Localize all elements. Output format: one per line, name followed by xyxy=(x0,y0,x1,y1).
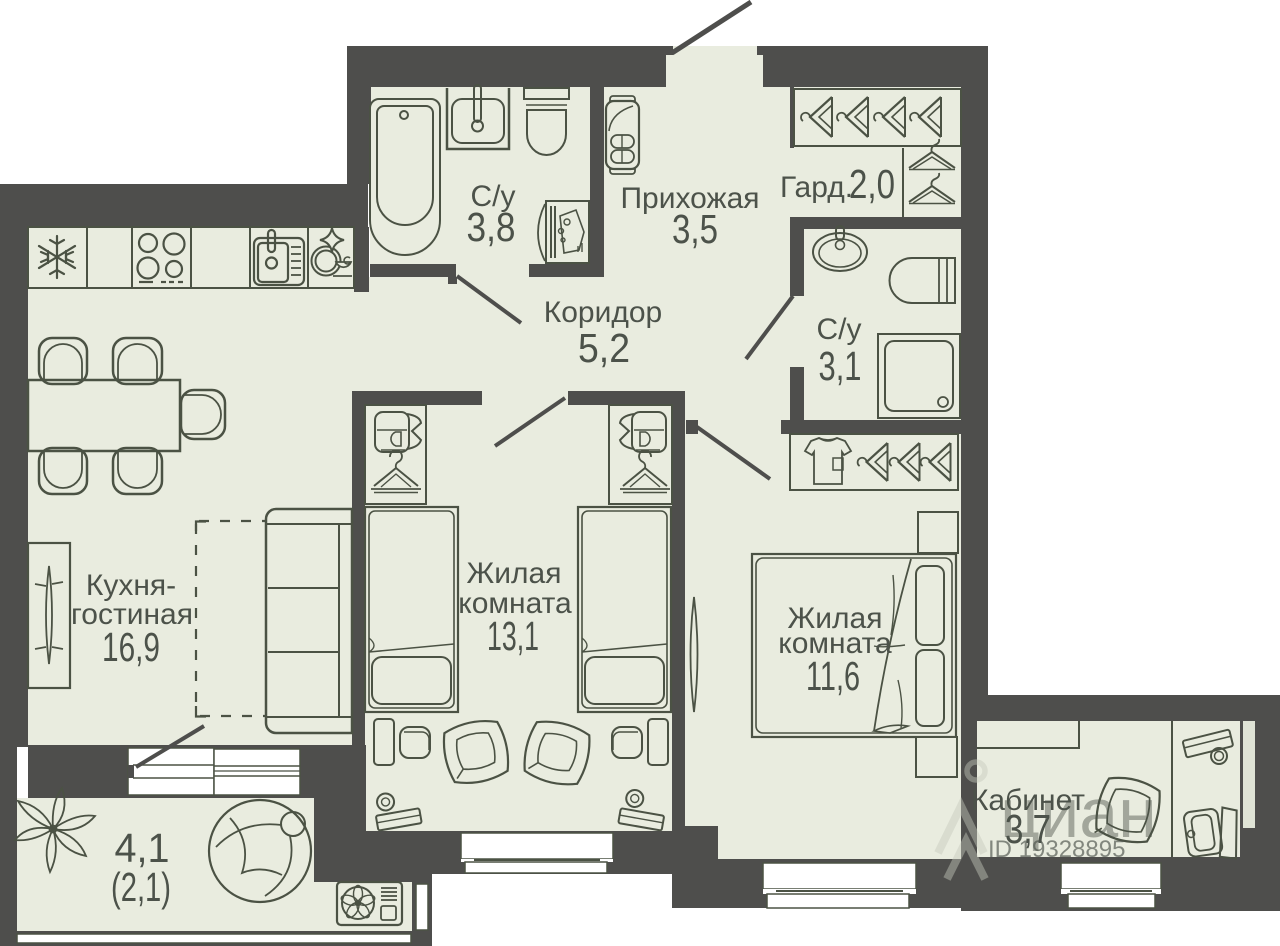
svg-text:С/у: С/у xyxy=(817,313,862,346)
svg-text:3,8: 3,8 xyxy=(467,204,516,250)
svg-text:(2,1): (2,1) xyxy=(111,864,171,910)
svg-text:ID 19328895: ID 19328895 xyxy=(988,836,1125,863)
svg-text:Жилая: Жилая xyxy=(467,557,562,590)
svg-text:16,9: 16,9 xyxy=(102,624,160,670)
svg-text:5,2: 5,2 xyxy=(578,325,630,371)
svg-text:13,1: 13,1 xyxy=(487,613,539,659)
svg-text:2,0: 2,0 xyxy=(849,161,895,207)
svg-text:3,1: 3,1 xyxy=(819,343,862,389)
svg-text:11,6: 11,6 xyxy=(806,653,860,699)
svg-text:Гард.: Гард. xyxy=(780,171,853,204)
svg-text:3,5: 3,5 xyxy=(672,206,718,252)
